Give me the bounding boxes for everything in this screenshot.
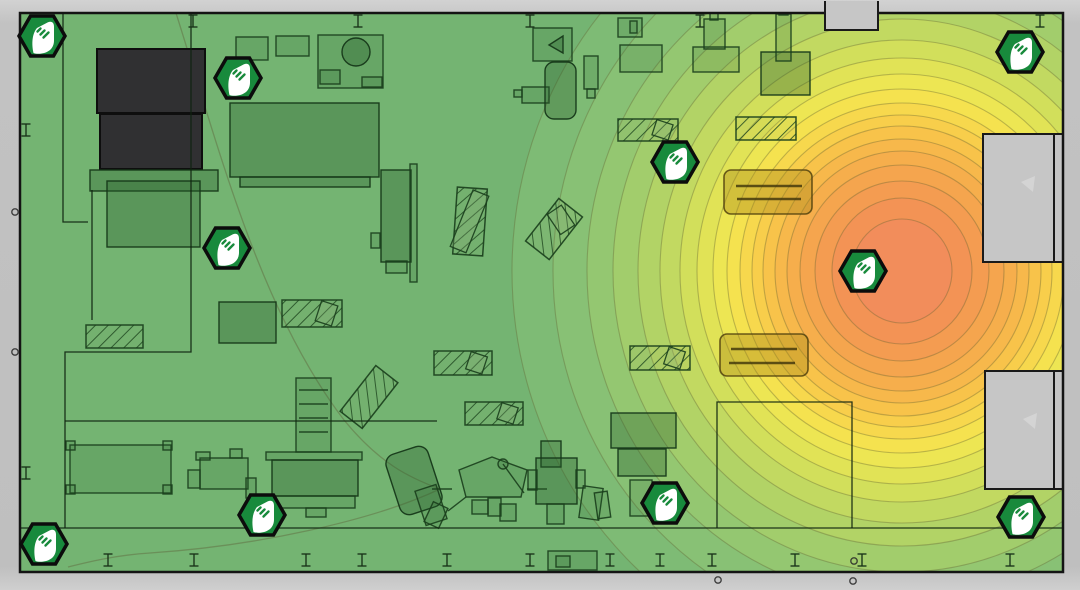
sensor-marker-1[interactable] <box>19 16 65 56</box>
equipment-machine <box>276 496 355 508</box>
sensor-marker-5[interactable] <box>840 251 886 291</box>
equipment-machine <box>630 21 637 33</box>
equipment-machine <box>306 508 326 517</box>
equipment-machine <box>410 164 417 282</box>
equipment-machine <box>704 19 725 49</box>
sensor-marker-6[interactable] <box>997 32 1043 72</box>
equipment-machine <box>536 458 577 504</box>
equipment-machine <box>528 470 537 490</box>
equipment-machine <box>240 177 370 187</box>
equipment-machine <box>230 449 242 458</box>
equipment-hatched-zone <box>434 351 492 375</box>
equipment-machine <box>556 556 570 567</box>
sensor-marker-7[interactable] <box>21 524 67 564</box>
equipment-machine <box>362 77 382 87</box>
equipment-machine <box>587 89 595 98</box>
sensor-marker-9[interactable] <box>642 483 688 523</box>
equipment-machine <box>66 485 75 494</box>
excluded-room <box>983 134 1063 262</box>
equipment-machine <box>584 56 598 89</box>
equipment-machine <box>500 504 516 521</box>
equipment-machine <box>514 90 522 97</box>
equipment-machine <box>472 500 488 514</box>
survey-point <box>850 578 856 584</box>
equipment-machine <box>276 36 309 56</box>
equipment-machine <box>200 458 248 489</box>
equipment-machine <box>296 378 331 452</box>
equipment-machine <box>196 452 210 460</box>
equipment-hatched-zone <box>282 300 342 327</box>
equipment-machine <box>320 70 340 84</box>
sensor-marker-8[interactable] <box>239 495 285 535</box>
equipment-machine <box>188 470 200 488</box>
equipment-machine <box>594 491 610 519</box>
survey-point <box>12 349 18 355</box>
door-notch <box>825 1 878 30</box>
equipment-hatched-zone <box>736 117 796 140</box>
equipment-machine <box>230 103 379 177</box>
equipment-machine <box>371 233 380 248</box>
equipment-machine <box>163 485 172 494</box>
equipment-machine <box>693 47 739 72</box>
equipment-machine <box>272 460 358 496</box>
floorplan-canvas[interactable] <box>0 0 1080 590</box>
equipment-machine <box>66 441 75 450</box>
equipment-machine <box>620 45 662 72</box>
floorplan-viewport[interactable] <box>0 0 1080 590</box>
equipment-machine-dark <box>97 49 205 113</box>
equipment-machine <box>163 441 172 450</box>
equipment-machine <box>488 498 501 516</box>
sensor-marker-3[interactable] <box>204 228 250 268</box>
equipment-machine <box>611 413 676 448</box>
equipment-hatched-zone <box>630 346 690 370</box>
equipment-hatched-zone <box>86 325 143 348</box>
equipment-machine <box>386 261 407 273</box>
equipment-hatched-zone <box>618 119 678 141</box>
equipment-machine <box>107 181 200 247</box>
equipment-table-yellow <box>720 334 808 376</box>
survey-point <box>715 577 721 583</box>
equipment-machine <box>219 302 276 343</box>
equipment-table-yellow <box>724 170 812 214</box>
sensor-marker-10[interactable] <box>998 497 1044 537</box>
equipment-machine <box>547 504 564 524</box>
excluded-room <box>985 371 1063 489</box>
equipment-circle <box>342 38 370 66</box>
equipment-machine <box>618 449 666 476</box>
equipment-hatched-zone <box>465 402 523 425</box>
sensor-marker-4[interactable] <box>652 142 698 182</box>
equipment-machine <box>70 445 171 493</box>
equipment-machine <box>545 62 576 119</box>
survey-point <box>12 209 18 215</box>
sensor-marker-2[interactable] <box>215 58 261 98</box>
equipment-machine <box>776 14 791 61</box>
equipment-machine <box>266 452 362 460</box>
equipment-machine-dark <box>100 114 202 169</box>
equipment-machine <box>381 170 411 262</box>
